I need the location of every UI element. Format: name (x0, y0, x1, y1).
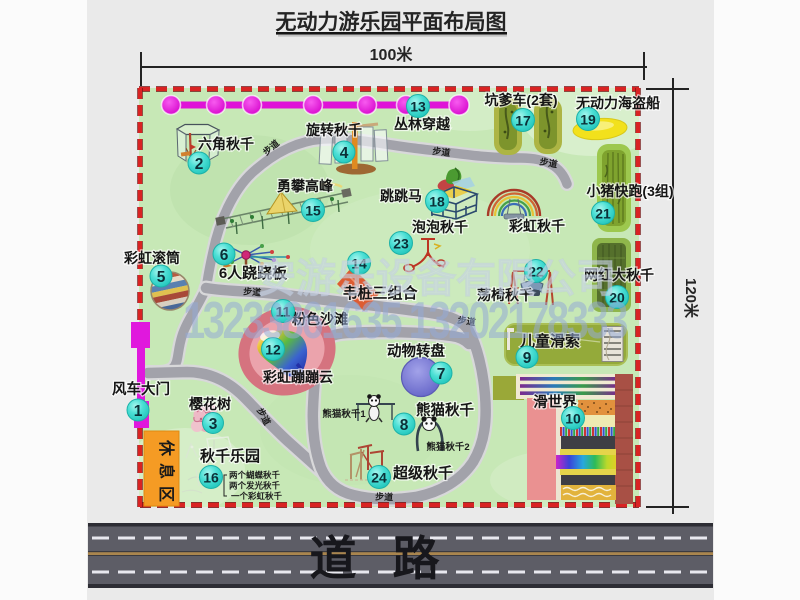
svg-text:彩虹蹦蹦云: 彩虹蹦蹦云 (262, 369, 333, 385)
svg-text:路: 路 (393, 532, 441, 585)
svg-text:熊猫秋千: 熊猫秋千 (416, 401, 474, 419)
svg-text:休息区: 休息区 (157, 439, 176, 509)
svg-text:6: 6 (220, 247, 229, 264)
svg-text:无动力游乐园平面布局图: 无动力游乐园平面布局图 (276, 10, 507, 34)
svg-text:勇攀高峰: 勇攀高峰 (277, 178, 334, 194)
svg-text:13233861635 13202178333: 13233861635 13202178333 (183, 291, 628, 349)
svg-text:彩虹秋千: 彩虹秋千 (508, 218, 565, 234)
svg-text:3: 3 (209, 416, 218, 433)
svg-text:秋千乐园: 秋千乐园 (200, 447, 260, 465)
svg-text:100米: 100米 (370, 45, 414, 64)
svg-text:超级秋千: 超级秋千 (392, 464, 453, 482)
svg-text:7: 7 (437, 366, 446, 383)
svg-text:旋转秋千: 旋转秋千 (305, 122, 362, 138)
svg-text:道: 道 (310, 532, 357, 585)
svg-text:坑爹车(2套): 坑爹车(2套) (484, 92, 557, 108)
svg-text:19: 19 (580, 112, 596, 128)
svg-text:13: 13 (410, 99, 426, 115)
svg-text:樱花树: 樱花树 (189, 396, 231, 412)
svg-text:泡泡秋千: 泡泡秋千 (412, 219, 468, 235)
svg-text:1: 1 (134, 403, 143, 420)
svg-text:跳跳马: 跳跳马 (380, 188, 422, 204)
svg-text:小猪快跑(3组): 小猪快跑(3组) (586, 183, 673, 199)
svg-text:23: 23 (393, 236, 409, 252)
svg-text:两个蝴蝶秋千: 两个蝴蝶秋千 (229, 470, 281, 480)
svg-text:15: 15 (305, 203, 321, 219)
svg-text:10: 10 (565, 411, 581, 427)
svg-text:彩虹滚筒: 彩虹滚筒 (123, 250, 180, 266)
svg-text:两个发光秋千: 两个发光秋千 (229, 481, 281, 491)
svg-text:熊猫秋千1: 熊猫秋千1 (322, 408, 366, 420)
svg-text:16: 16 (203, 470, 219, 486)
svg-text:风车大门: 风车大门 (112, 380, 170, 398)
svg-text:步道: 步道 (375, 491, 393, 503)
svg-text:5: 5 (157, 269, 166, 286)
svg-text:一个彩虹秋千: 一个彩虹秋千 (231, 491, 283, 501)
svg-text:熊猫秋千2: 熊猫秋千2 (426, 441, 469, 453)
svg-text:2: 2 (195, 156, 204, 173)
svg-text:9: 9 (523, 350, 532, 367)
svg-text:六角秋千: 六角秋千 (198, 136, 254, 152)
svg-text:120米: 120米 (682, 278, 700, 319)
svg-text:丛林穿越: 丛林穿越 (394, 116, 451, 132)
svg-text:24: 24 (371, 470, 387, 486)
svg-text:步道: 步道 (432, 145, 451, 158)
svg-text:4: 4 (340, 145, 349, 162)
svg-text:8: 8 (400, 417, 409, 434)
svg-text:18: 18 (429, 194, 445, 210)
svg-text:21: 21 (595, 206, 611, 222)
svg-text:17: 17 (515, 113, 531, 129)
